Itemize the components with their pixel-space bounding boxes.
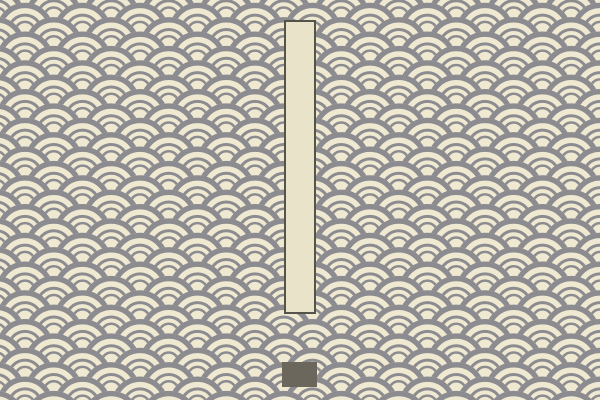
game-stage[interactable] [0,0,600,400]
dark-block[interactable] [282,362,317,387]
pillar-obstacle[interactable] [284,20,316,314]
